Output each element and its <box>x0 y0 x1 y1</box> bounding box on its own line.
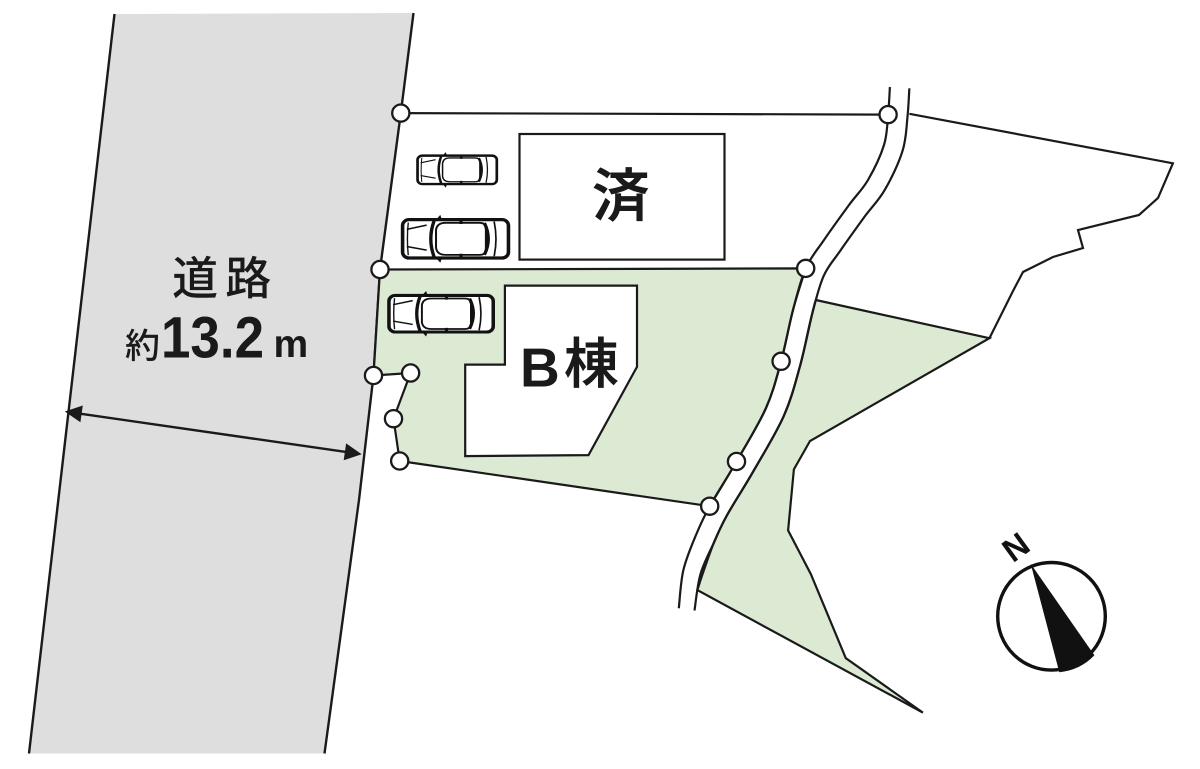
svg-text:B: B <box>520 336 560 398</box>
svg-text:13.2: 13.2 <box>161 305 264 370</box>
svg-text:m: m <box>274 323 309 366</box>
